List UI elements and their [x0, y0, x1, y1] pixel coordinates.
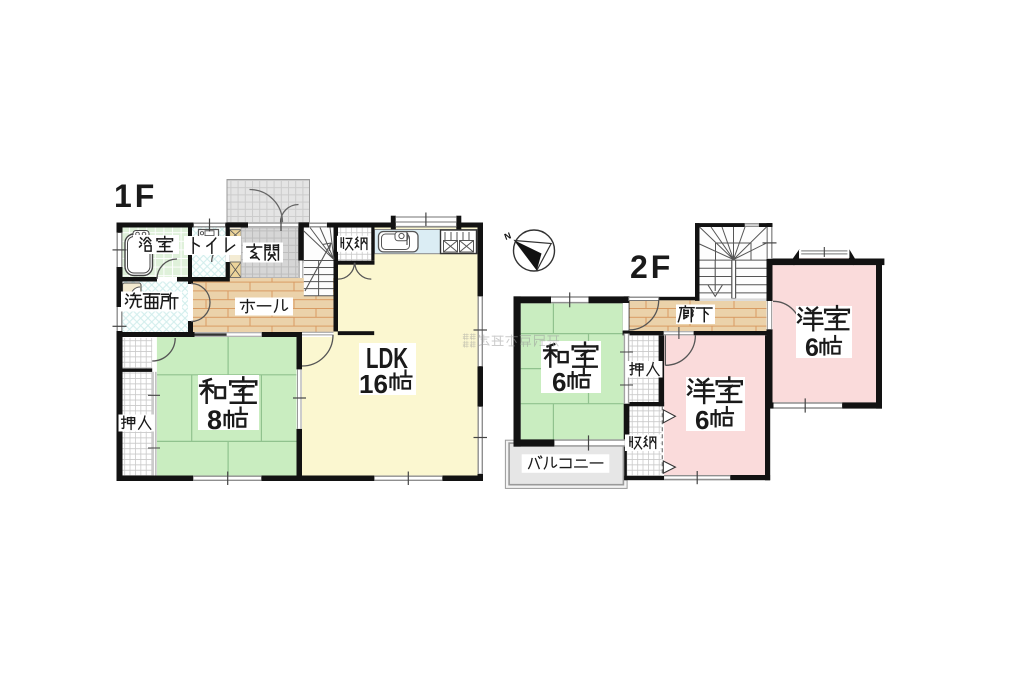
svg-text:8: 8: [207, 405, 222, 435]
svg-text:16: 16: [359, 369, 388, 399]
svg-text:2F: 2F: [630, 249, 673, 285]
svg-text:6: 6: [805, 334, 819, 362]
svg-text:6: 6: [552, 367, 566, 397]
svg-text:6: 6: [695, 405, 709, 435]
svg-text:1F: 1F: [114, 178, 157, 214]
